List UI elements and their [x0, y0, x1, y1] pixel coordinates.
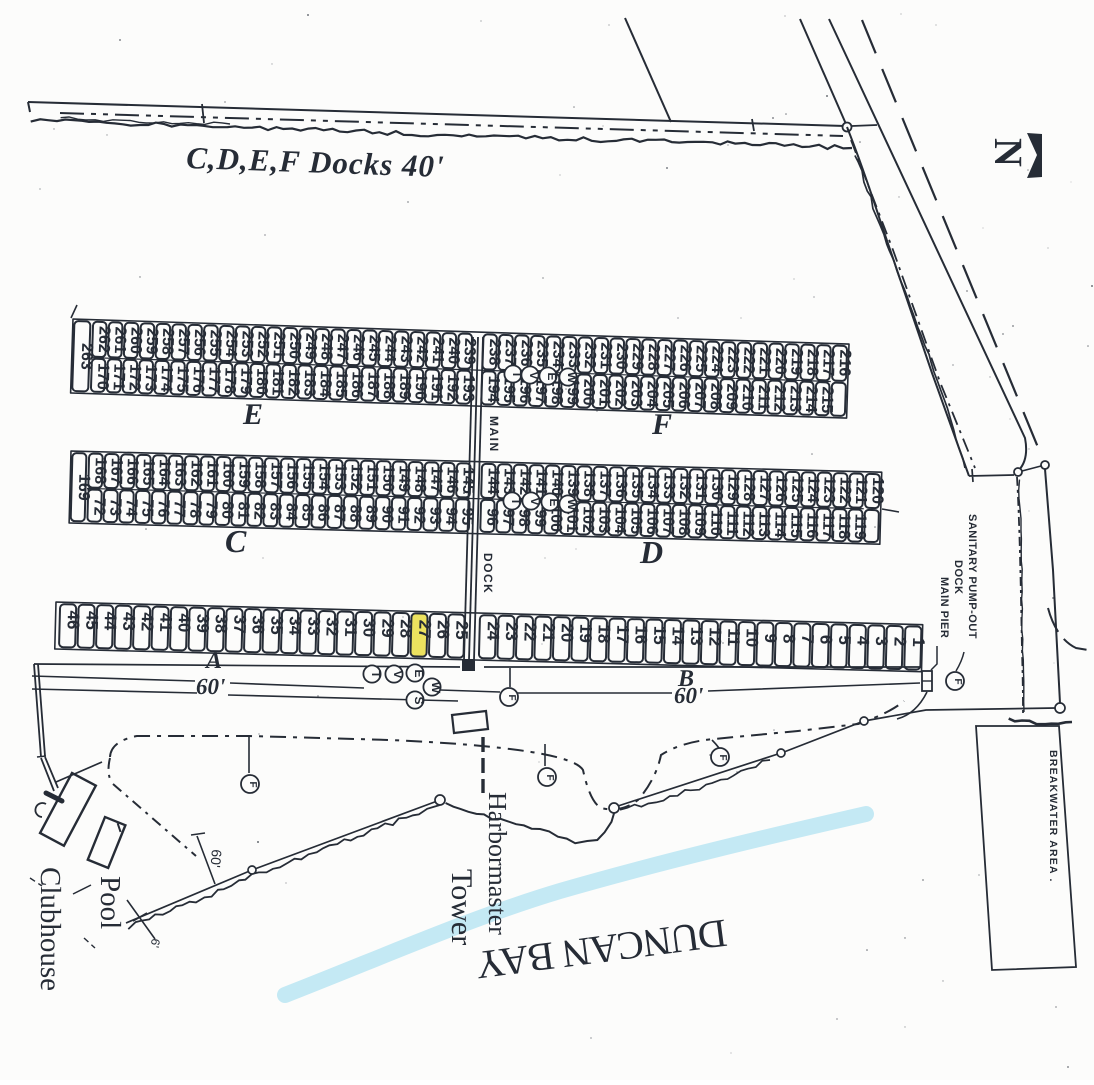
svg-text:150: 150	[379, 465, 397, 492]
svg-text:8: 8	[779, 634, 798, 644]
svg-text:30: 30	[359, 618, 378, 637]
svg-text:254: 254	[222, 330, 240, 357]
svg-text:240: 240	[445, 337, 463, 364]
svg-text:174: 174	[157, 365, 175, 392]
svg-text:31: 31	[341, 618, 360, 637]
svg-text:220: 220	[771, 348, 789, 375]
svg-text:88: 88	[346, 504, 363, 522]
svg-text:7: 7	[798, 634, 817, 644]
svg-text:111: 111	[723, 511, 741, 536]
svg-text:79: 79	[202, 501, 219, 519]
svg-text:DOCK: DOCK	[481, 553, 495, 594]
svg-text:113: 113	[755, 511, 773, 537]
svg-text:185: 185	[332, 371, 350, 398]
svg-text:43: 43	[119, 612, 138, 631]
svg-text:213: 213	[786, 385, 804, 412]
svg-text:35: 35	[267, 616, 286, 635]
svg-text:128: 128	[740, 474, 758, 501]
svg-text:204: 204	[643, 381, 661, 408]
svg-text:139: 139	[564, 470, 582, 497]
svg-text:W: W	[429, 682, 443, 694]
svg-text:Harbormaster: Harbormaster	[483, 792, 512, 935]
svg-text:171: 171	[110, 363, 128, 390]
svg-text:105: 105	[627, 507, 645, 534]
svg-text:131: 131	[692, 473, 710, 500]
svg-text:114: 114	[771, 511, 789, 537]
svg-text:152: 152	[347, 464, 365, 491]
svg-text:MAIN PIER: MAIN PIER	[938, 577, 950, 638]
svg-text:87: 87	[330, 504, 347, 522]
svg-text:158: 158	[251, 461, 269, 488]
svg-text:13: 13	[687, 627, 706, 646]
svg-text:190: 190	[411, 373, 429, 400]
svg-text:14: 14	[668, 626, 688, 646]
svg-text:17: 17	[613, 625, 632, 644]
svg-text:246: 246	[349, 334, 367, 361]
svg-text:231: 231	[597, 342, 615, 369]
svg-text:37: 37	[230, 615, 249, 634]
svg-text:125: 125	[788, 475, 806, 502]
svg-text:177: 177	[205, 366, 223, 393]
svg-text:24: 24	[483, 621, 503, 641]
svg-text:241: 241	[429, 337, 447, 364]
svg-text:187: 187	[364, 372, 382, 399]
svg-text:217: 217	[819, 349, 837, 376]
svg-text:234: 234	[549, 341, 567, 368]
svg-text:42: 42	[137, 612, 156, 631]
svg-text:72: 72	[90, 498, 107, 516]
svg-text:135: 135	[628, 471, 646, 498]
svg-text:203: 203	[627, 380, 645, 407]
svg-text:181: 181	[268, 369, 286, 396]
svg-text:74: 74	[122, 498, 139, 516]
svg-text:76: 76	[154, 499, 171, 517]
svg-text:20: 20	[557, 623, 576, 642]
svg-text:10: 10	[742, 628, 761, 647]
svg-text:153: 153	[331, 463, 349, 490]
svg-text:168: 168	[91, 457, 109, 484]
svg-text:258: 258	[158, 328, 176, 355]
svg-text:121: 121	[852, 477, 870, 504]
svg-text:124: 124	[804, 476, 822, 503]
svg-text:130: 130	[708, 473, 726, 500]
svg-text:214: 214	[802, 386, 820, 413]
svg-text:MAIN: MAIN	[487, 416, 501, 453]
svg-text:249: 249	[302, 333, 320, 360]
svg-text:77: 77	[170, 500, 187, 518]
svg-text:243: 243	[397, 336, 415, 363]
svg-text:184: 184	[316, 370, 334, 397]
svg-text:178: 178	[221, 367, 239, 394]
svg-text:155: 155	[299, 463, 317, 490]
svg-text:99: 99	[531, 509, 548, 527]
svg-text:211: 211	[754, 385, 772, 411]
svg-text:129: 129	[724, 474, 742, 501]
svg-text:27: 27	[415, 619, 434, 638]
svg-text:38: 38	[211, 614, 230, 633]
svg-text:21: 21	[539, 623, 558, 642]
svg-text:164: 164	[155, 459, 173, 486]
svg-text:138: 138	[580, 470, 598, 497]
svg-text:1: 1	[909, 637, 928, 647]
svg-text:DOCK: DOCK	[952, 560, 964, 594]
svg-text:22: 22	[520, 622, 539, 641]
svg-text:250: 250	[286, 332, 304, 359]
svg-text:C: C	[225, 523, 247, 559]
svg-text:73: 73	[106, 498, 123, 516]
svg-text:191: 191	[427, 374, 445, 401]
svg-text:221: 221	[755, 347, 773, 374]
svg-text:Tower: Tower	[445, 869, 478, 945]
svg-text:239: 239	[460, 338, 478, 365]
svg-text:251: 251	[270, 332, 288, 359]
svg-text:173: 173	[141, 364, 159, 391]
svg-text:N: N	[986, 138, 1031, 167]
svg-text:192: 192	[443, 374, 461, 401]
svg-text:41: 41	[156, 613, 175, 632]
svg-text:202: 202	[611, 380, 629, 407]
svg-text:102: 102	[579, 506, 597, 533]
svg-text:233: 233	[565, 341, 583, 368]
svg-text:118: 118	[835, 513, 853, 539]
svg-text:161: 161	[203, 460, 221, 487]
svg-text:142: 142	[516, 468, 534, 495]
svg-text:255: 255	[206, 329, 224, 356]
svg-text:BREAKWATER AREA .: BREAKWATER AREA .	[1047, 750, 1059, 883]
svg-text:186: 186	[348, 371, 366, 398]
svg-text:108: 108	[675, 508, 693, 535]
svg-text:133: 133	[660, 472, 678, 499]
svg-text:11: 11	[724, 628, 743, 646]
svg-text:F: F	[651, 408, 672, 441]
svg-text:F: F	[247, 781, 258, 787]
svg-text:226: 226	[676, 345, 694, 372]
svg-text:146: 146	[443, 466, 461, 493]
svg-text:29: 29	[378, 618, 397, 637]
svg-text:201: 201	[595, 379, 613, 406]
svg-text:262: 262	[95, 326, 113, 353]
svg-text:F: F	[952, 678, 963, 684]
svg-text:23: 23	[502, 622, 521, 641]
svg-text:T: T	[369, 671, 383, 679]
svg-text:W: W	[565, 372, 579, 384]
svg-text:81: 81	[234, 501, 251, 519]
svg-text:120: 120	[868, 477, 886, 504]
svg-text:123: 123	[820, 476, 838, 503]
svg-text:175: 175	[173, 365, 191, 392]
svg-text:60': 60'	[674, 683, 703, 708]
svg-text:222: 222	[740, 347, 758, 374]
svg-text:V: V	[391, 670, 405, 678]
svg-text:E: E	[412, 669, 426, 677]
svg-text:247: 247	[333, 334, 351, 361]
svg-text:V: V	[528, 497, 542, 505]
svg-text:25: 25	[452, 620, 471, 639]
svg-text:115: 115	[787, 512, 805, 538]
svg-text:40: 40	[174, 613, 193, 632]
svg-text:Pool: Pool	[94, 876, 126, 929]
svg-text:89: 89	[362, 505, 379, 523]
svg-text:36: 36	[248, 615, 267, 634]
svg-text:215: 215	[818, 386, 836, 413]
svg-text:236: 236	[517, 340, 535, 367]
svg-text:179: 179	[237, 367, 255, 394]
svg-text:208: 208	[707, 383, 725, 410]
svg-text:60': 60'	[196, 674, 225, 699]
svg-text:172: 172	[126, 364, 144, 391]
svg-text:212: 212	[770, 385, 788, 412]
svg-text:261: 261	[111, 326, 129, 353]
svg-text:225: 225	[692, 345, 710, 372]
svg-text:E: E	[545, 372, 559, 380]
svg-text:206: 206	[675, 382, 693, 409]
svg-text:107: 107	[659, 508, 677, 535]
svg-text:165: 165	[139, 458, 157, 485]
svg-text:144: 144	[484, 467, 502, 494]
svg-text:112: 112	[739, 511, 757, 537]
svg-text:109: 109	[691, 509, 709, 536]
svg-text:39: 39	[193, 614, 212, 633]
svg-text:116: 116	[803, 512, 821, 538]
svg-text:229: 229	[628, 343, 646, 370]
svg-text:257: 257	[174, 328, 192, 355]
svg-text:SANITARY PUMP-OUT: SANITARY PUMP-OUT	[966, 514, 978, 639]
svg-text:16: 16	[631, 625, 650, 644]
svg-text:193: 193	[459, 375, 477, 402]
svg-text:103: 103	[595, 506, 613, 533]
svg-text:224: 224	[708, 346, 726, 373]
svg-text:244: 244	[381, 335, 399, 362]
svg-text:170: 170	[94, 363, 112, 390]
svg-text:230: 230	[612, 343, 630, 370]
svg-text:92: 92	[410, 506, 427, 524]
svg-text:141: 141	[532, 469, 550, 496]
svg-text:86: 86	[314, 503, 331, 521]
svg-text:2: 2	[890, 637, 909, 647]
svg-text:84: 84	[282, 503, 299, 521]
svg-text:209: 209	[723, 383, 741, 410]
svg-text:98: 98	[515, 509, 532, 527]
svg-text:218: 218	[803, 349, 821, 376]
svg-text:260: 260	[127, 327, 145, 354]
svg-text:252: 252	[254, 331, 272, 358]
svg-text:106: 106	[643, 508, 661, 535]
svg-text:46: 46	[63, 610, 82, 629]
svg-text:227: 227	[660, 344, 678, 371]
svg-text:4: 4	[853, 636, 872, 646]
svg-text:119: 119	[851, 514, 869, 540]
svg-text:219: 219	[787, 348, 805, 375]
svg-text:216: 216	[835, 349, 853, 376]
svg-text:E: E	[242, 398, 263, 431]
svg-text:210: 210	[738, 384, 756, 411]
svg-text:104: 104	[611, 507, 629, 534]
svg-text:160: 160	[219, 461, 237, 488]
svg-text:189: 189	[396, 373, 414, 400]
svg-text:134: 134	[644, 472, 662, 499]
svg-text:228: 228	[644, 344, 662, 371]
svg-text:200: 200	[579, 379, 597, 406]
svg-text:83: 83	[266, 502, 283, 520]
svg-text:12: 12	[705, 627, 724, 646]
svg-text:148: 148	[411, 466, 429, 493]
svg-text:45: 45	[82, 611, 101, 630]
svg-text:259: 259	[143, 327, 161, 354]
svg-text:94: 94	[442, 507, 459, 525]
svg-text:166: 166	[123, 458, 141, 485]
svg-text:93: 93	[426, 506, 443, 524]
svg-text:26: 26	[433, 620, 452, 639]
svg-text:5: 5	[835, 635, 854, 645]
svg-text:91: 91	[394, 506, 411, 524]
svg-text:D: D	[639, 534, 663, 570]
svg-text:F: F	[544, 774, 555, 780]
svg-text:156: 156	[283, 462, 301, 489]
svg-text:180: 180	[253, 368, 271, 395]
svg-text:137: 137	[596, 470, 614, 497]
svg-text:245: 245	[365, 335, 383, 362]
svg-text:78: 78	[186, 500, 203, 518]
svg-text:194: 194	[484, 375, 502, 402]
svg-text:163: 163	[171, 459, 189, 486]
svg-text:Clubhouse: Clubhouse	[34, 867, 66, 991]
svg-text:85: 85	[298, 503, 315, 521]
svg-text:6: 6	[816, 635, 835, 645]
svg-text:183: 183	[300, 370, 318, 397]
svg-text:F: F	[717, 754, 728, 760]
svg-text:75: 75	[138, 499, 155, 517]
svg-text:154: 154	[315, 463, 333, 490]
svg-text:15: 15	[650, 626, 669, 645]
svg-text:235: 235	[533, 340, 551, 367]
svg-text:149: 149	[395, 465, 413, 492]
svg-text:176: 176	[189, 366, 207, 393]
svg-text:188: 188	[380, 372, 398, 399]
svg-text:60': 60'	[207, 849, 225, 869]
svg-text:9: 9	[761, 633, 780, 643]
svg-text:182: 182	[284, 369, 302, 396]
svg-text:127: 127	[756, 475, 774, 502]
svg-text:82: 82	[250, 502, 267, 520]
svg-text:96: 96	[483, 508, 500, 526]
svg-text:97: 97	[499, 508, 516, 526]
svg-text:F: F	[506, 694, 517, 700]
svg-text:256: 256	[190, 329, 208, 356]
svg-text:19: 19	[576, 624, 595, 643]
svg-text:132: 132	[676, 473, 694, 500]
svg-text:253: 253	[238, 331, 256, 358]
svg-text:205: 205	[659, 381, 677, 408]
svg-text:162: 162	[187, 460, 205, 487]
svg-text:248: 248	[317, 333, 335, 360]
svg-text:159: 159	[235, 461, 253, 488]
svg-text:W: W	[565, 499, 579, 511]
svg-text:44: 44	[100, 611, 120, 631]
svg-text:18: 18	[594, 624, 613, 643]
svg-text:80: 80	[218, 501, 235, 519]
svg-text:110: 110	[707, 510, 725, 536]
svg-text:33: 33	[304, 617, 323, 636]
svg-text:3: 3	[872, 636, 891, 646]
svg-text:157: 157	[267, 462, 285, 489]
svg-text:232: 232	[581, 342, 599, 369]
svg-text:143: 143	[500, 468, 518, 495]
svg-text:117: 117	[819, 513, 837, 539]
svg-text:136: 136	[612, 471, 630, 498]
svg-text:140: 140	[548, 469, 566, 496]
svg-text:223: 223	[724, 346, 742, 373]
svg-text:147: 147	[427, 466, 445, 493]
svg-text:T: T	[509, 498, 523, 506]
svg-text:238: 238	[485, 338, 503, 365]
svg-text:90: 90	[378, 505, 395, 523]
svg-text:A: A	[204, 648, 222, 674]
svg-text:167: 167	[107, 458, 125, 485]
svg-text:122: 122	[836, 477, 854, 504]
svg-text:242: 242	[413, 336, 431, 363]
svg-text:207: 207	[691, 382, 709, 409]
svg-text:151: 151	[363, 464, 381, 491]
svg-text:S: S	[412, 696, 426, 704]
svg-text:126: 126	[772, 475, 790, 502]
svg-text:34: 34	[285, 616, 305, 636]
svg-text:237: 237	[501, 339, 519, 366]
svg-text:32: 32	[322, 617, 341, 636]
